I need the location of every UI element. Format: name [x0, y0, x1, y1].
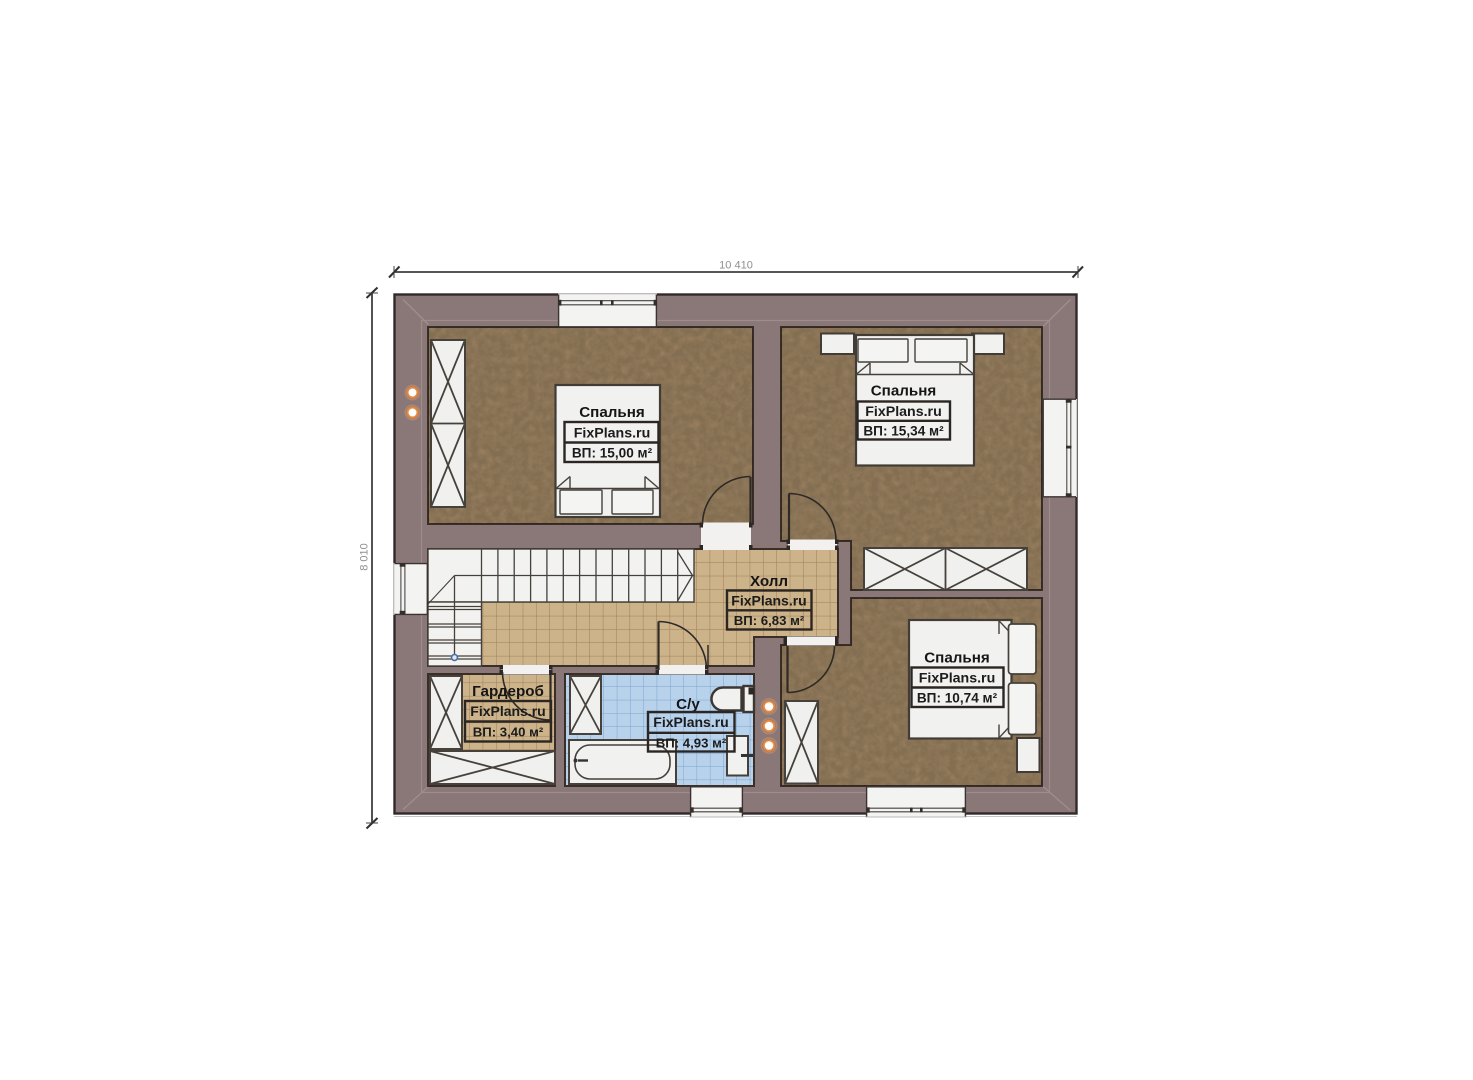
svg-text:Гардероб: Гардероб [472, 683, 544, 700]
svg-text:10 410: 10 410 [719, 260, 753, 272]
svg-text:FixPlans.ru: FixPlans.ru [653, 714, 728, 730]
svg-text:ВП: 3,40 м²: ВП: 3,40 м² [473, 725, 544, 740]
svg-text:ВП: 15,34 м²: ВП: 15,34 м² [863, 424, 944, 439]
svg-text:8 010: 8 010 [359, 543, 371, 571]
svg-text:FixPlans.ru: FixPlans.ru [865, 404, 941, 420]
svg-text:ВП: 4,93 м²: ВП: 4,93 м² [656, 736, 727, 751]
svg-text:FixPlans.ru: FixPlans.ru [731, 593, 806, 609]
svg-text:Спальня: Спальня [871, 383, 937, 400]
svg-text:С/у: С/у [676, 696, 700, 713]
svg-text:ВП: 10,74 м²: ВП: 10,74 м² [917, 691, 998, 706]
svg-text:Холл: Холл [750, 573, 788, 590]
svg-text:Спальня: Спальня [579, 404, 645, 421]
svg-text:FixPlans.ru: FixPlans.ru [919, 671, 995, 687]
svg-text:FixPlans.ru: FixPlans.ru [574, 426, 650, 442]
svg-text:FixPlans.ru: FixPlans.ru [470, 703, 545, 719]
svg-text:ВП: 15,00 м²: ВП: 15,00 м² [572, 446, 653, 461]
svg-text:Спальня: Спальня [924, 650, 990, 667]
svg-text:ВП: 6,83 м²: ВП: 6,83 м² [734, 613, 805, 628]
